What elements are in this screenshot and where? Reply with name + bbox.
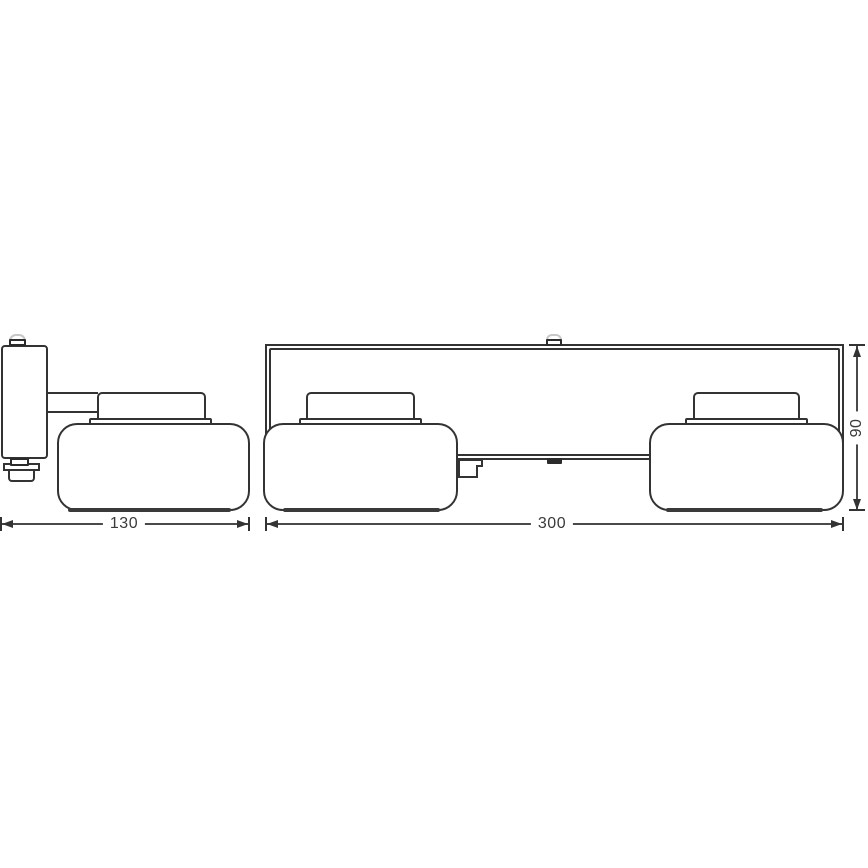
side-lamp-foot bbox=[68, 508, 231, 512]
side-support-arm bbox=[48, 392, 98, 413]
dim-300-tick-right bbox=[842, 517, 844, 531]
front-left-lamp-cap bbox=[306, 392, 415, 420]
side-plate-top-tab bbox=[9, 339, 26, 346]
dim-300-arrow-left-icon bbox=[267, 520, 278, 528]
dim-90-label: 90 bbox=[848, 412, 866, 445]
dim-90-arrow-up-icon bbox=[853, 346, 861, 357]
side-wall-plate bbox=[1, 345, 48, 459]
front-right-lamp-foot bbox=[666, 508, 823, 512]
dim-130-arrow-right-icon bbox=[237, 520, 248, 528]
technical-drawing-canvas: 130 300 90 bbox=[0, 0, 868, 868]
dim-300-arrow-right-icon bbox=[831, 520, 842, 528]
front-joint-bracket-lower bbox=[458, 465, 478, 478]
side-lamp-shade bbox=[57, 423, 250, 511]
dim-130-arrow-left-icon bbox=[2, 520, 13, 528]
front-bottom-tab bbox=[547, 458, 562, 464]
front-left-lamp-shade bbox=[263, 423, 458, 511]
dim-130-tick-right bbox=[248, 517, 250, 531]
front-right-lamp-cap bbox=[693, 392, 800, 420]
side-lamp-cap bbox=[97, 392, 206, 420]
side-knob-body bbox=[8, 469, 35, 482]
front-top-tab bbox=[546, 339, 562, 346]
side-knob-tab bbox=[10, 458, 29, 466]
dim-130-label: 130 bbox=[103, 515, 145, 533]
front-left-lamp-foot bbox=[283, 508, 440, 512]
dim-300-label: 300 bbox=[531, 515, 573, 533]
dim-90-arrow-down-icon bbox=[853, 499, 861, 510]
front-right-lamp-shade bbox=[649, 423, 844, 511]
